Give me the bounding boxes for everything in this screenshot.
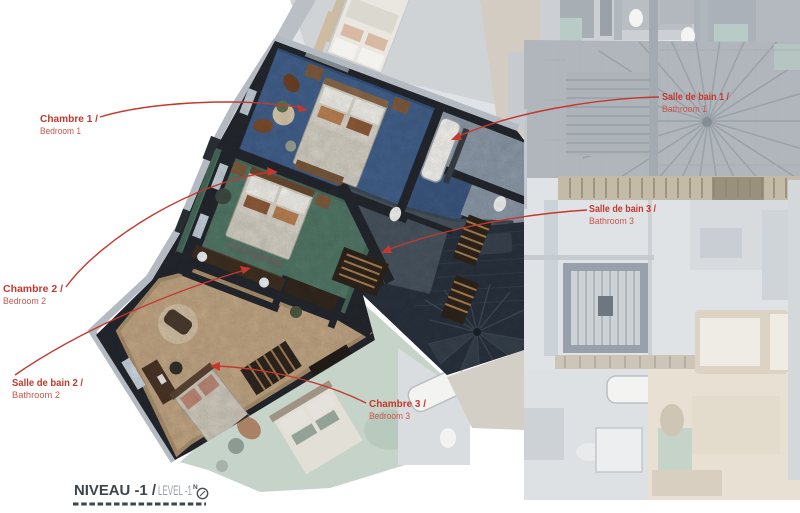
svg-text:Chambre 3 /: Chambre 3 / xyxy=(369,399,426,410)
svg-text:Bedroom 2: Bedroom 2 xyxy=(3,296,46,307)
svg-text:Salle de bain 1 /: Salle de bain 1 / xyxy=(662,92,729,103)
svg-text:Bedroom 1: Bedroom 1 xyxy=(40,126,81,137)
svg-text:NIVEAU -1 /: NIVEAU -1 / xyxy=(74,483,156,499)
svg-text:Bathroom 1: Bathroom 1 xyxy=(662,104,707,115)
svg-text:Salle de bain 2 /: Salle de bain 2 / xyxy=(12,378,83,389)
svg-text:Bathroom 2: Bathroom 2 xyxy=(12,390,60,401)
svg-text:Salle de bain 3 /: Salle de bain 3 / xyxy=(589,204,656,215)
svg-text:Chambre 2 /: Chambre 2 / xyxy=(3,284,63,295)
svg-text:Bedroom 3: Bedroom 3 xyxy=(369,411,410,422)
svg-text:Bathroom 3: Bathroom 3 xyxy=(589,216,634,227)
svg-text:N: N xyxy=(193,484,198,491)
svg-text:Chambre 1 /: Chambre 1 / xyxy=(40,114,98,125)
svg-text:LEVEL -1: LEVEL -1 xyxy=(158,482,192,498)
